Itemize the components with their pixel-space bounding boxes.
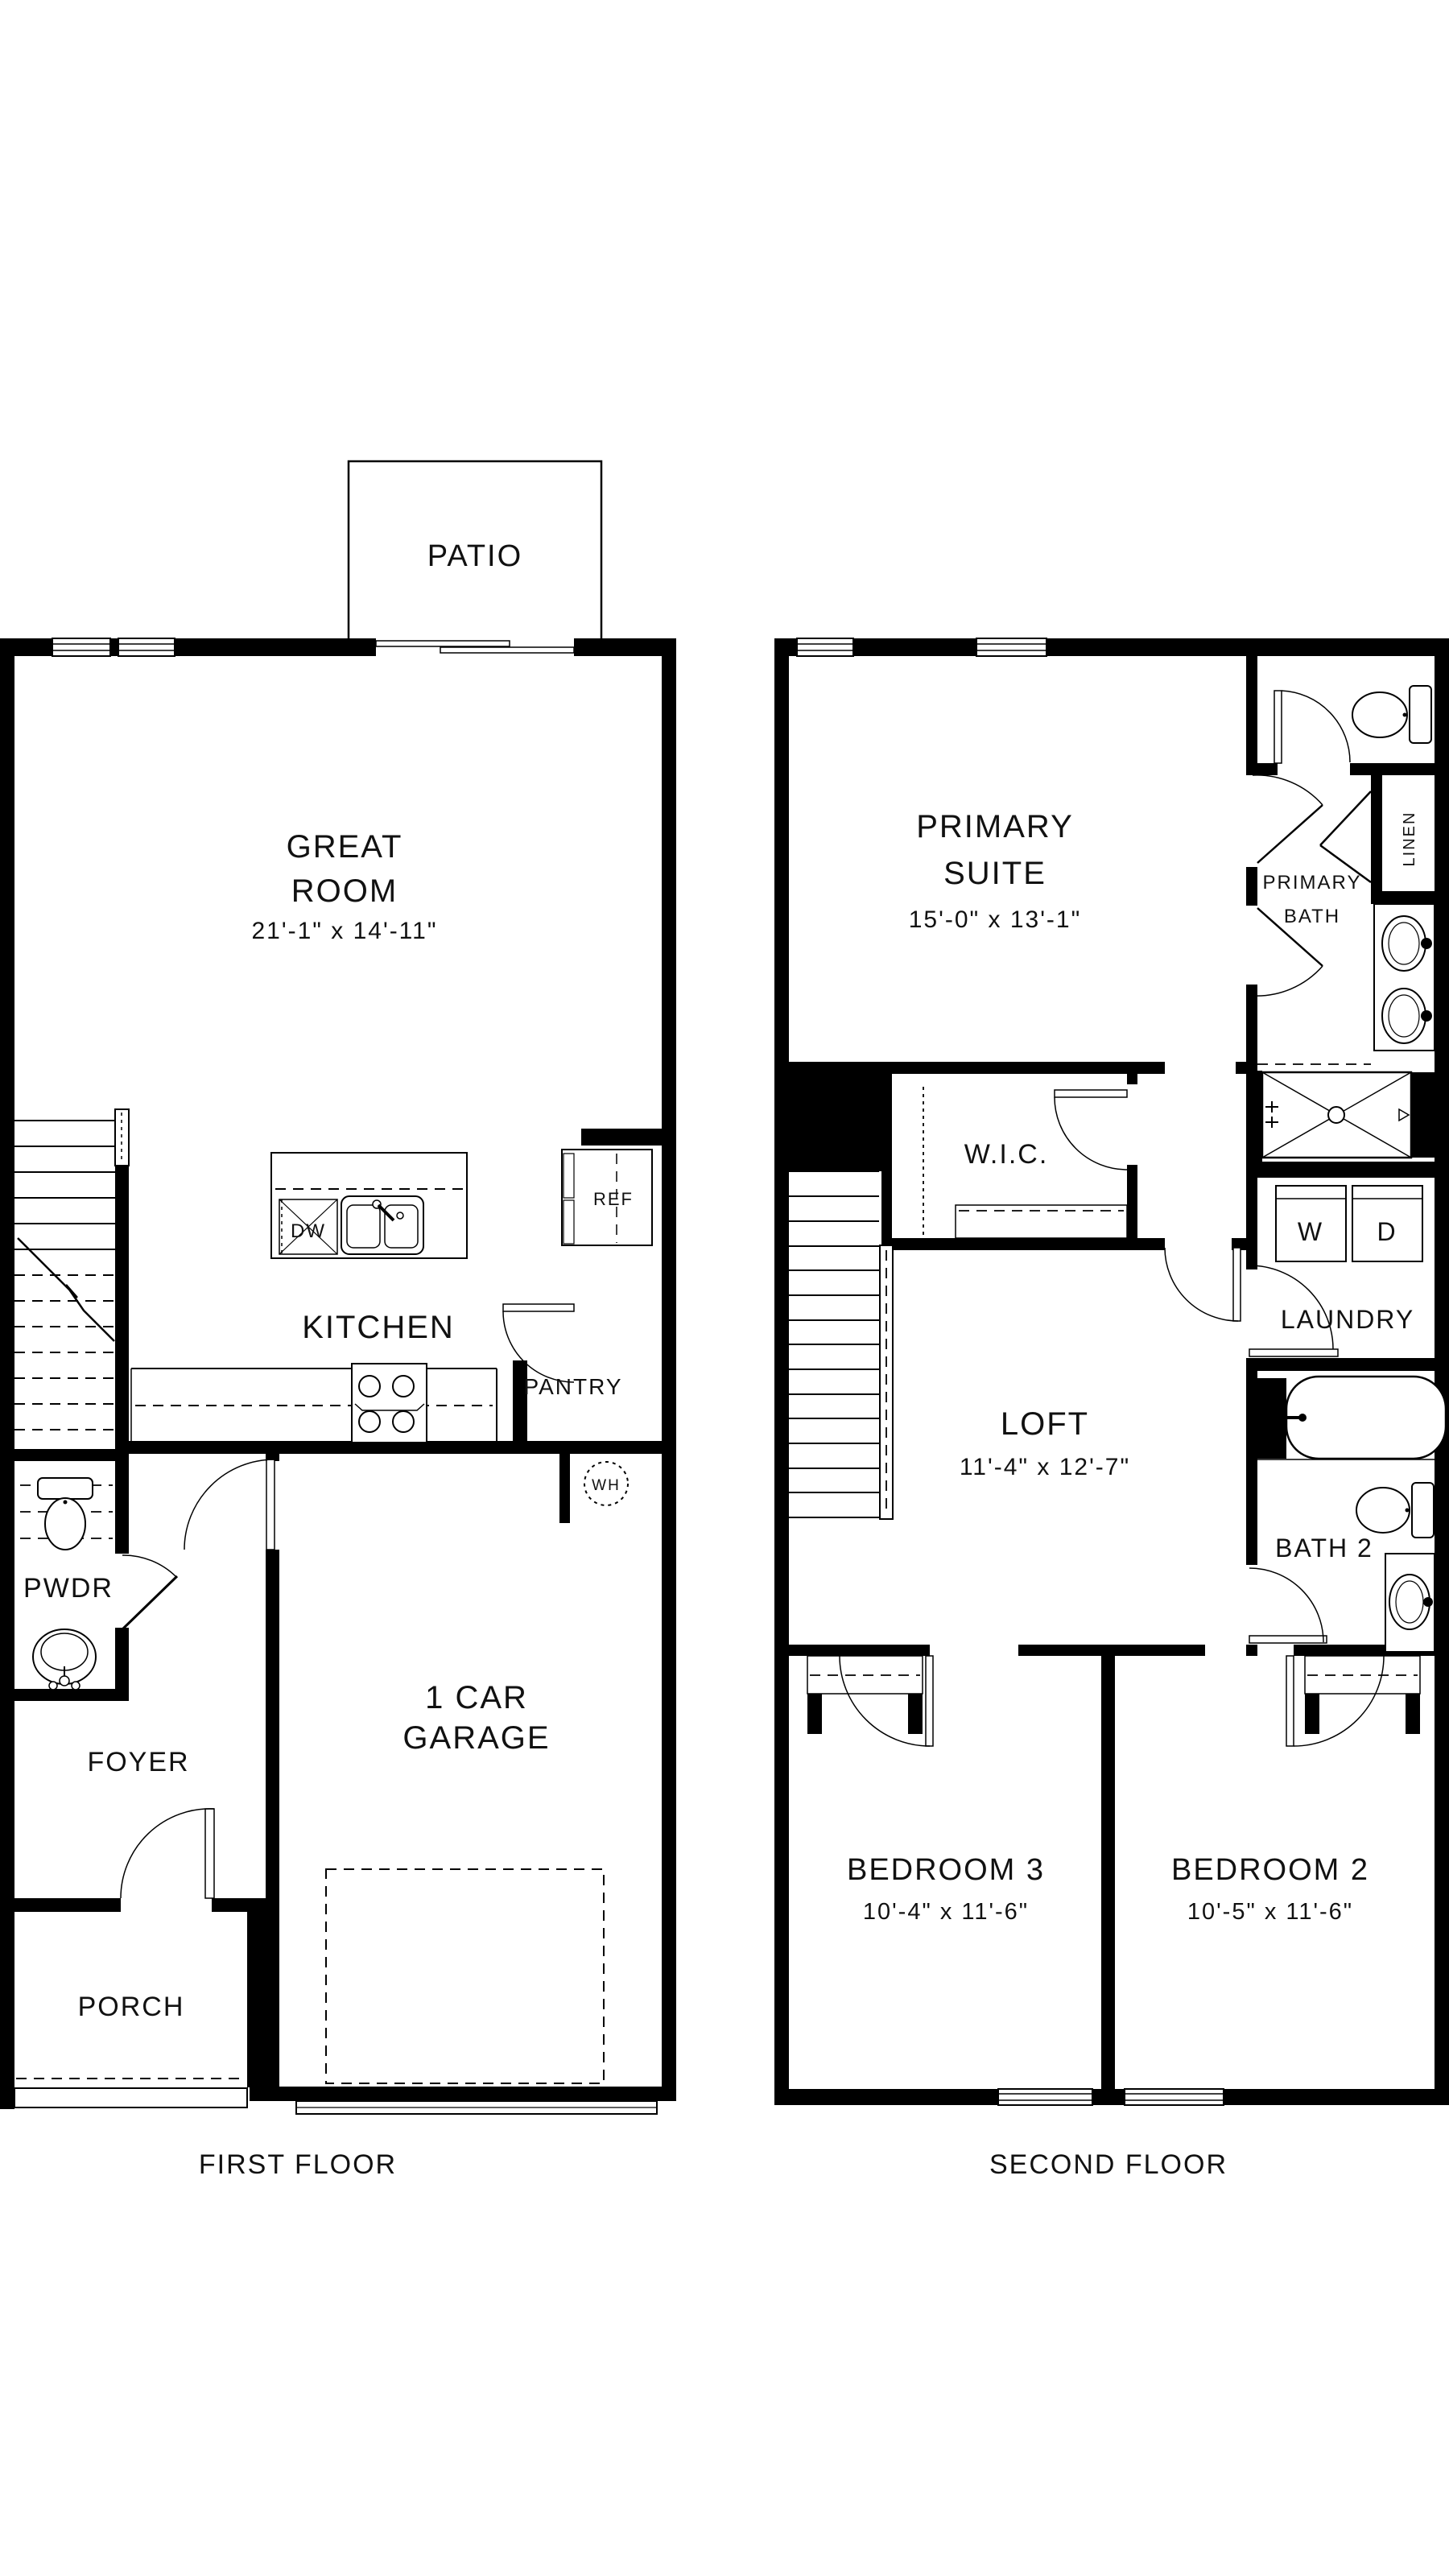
kitchen-island: DW: [271, 1153, 467, 1258]
bath2-label: BATH 2: [1275, 1534, 1373, 1563]
foyer-label: FOYER: [87, 1747, 189, 1777]
wh-label: WH: [592, 1477, 621, 1494]
dryer: D: [1352, 1186, 1422, 1261]
kitchen-sink: [341, 1196, 423, 1254]
bedroom2-label: BEDROOM 2: [1171, 1853, 1369, 1887]
great-room-dims: 21'-1" x 14'-11": [252, 918, 438, 944]
garage: 1 CAR GARAGE: [296, 1680, 657, 2114]
dryer-label: D: [1377, 1217, 1397, 1246]
laundry: W D LAUNDRY: [1249, 1186, 1422, 1356]
bedroom2-closet: [1305, 1656, 1420, 1694]
washer: W: [1276, 1186, 1346, 1261]
primary-suite: PRIMARY SUITE 15'-0" x 13'-1": [909, 809, 1082, 933]
garage-label-2: GARAGE: [402, 1720, 550, 1756]
stove: [352, 1364, 427, 1443]
loft-label: LOFT: [1001, 1406, 1089, 1442]
porch: PORCH: [14, 1992, 247, 2107]
refrigerator: REF: [562, 1150, 652, 1245]
primary-toilet-room: [1274, 686, 1431, 763]
ref-label: REF: [593, 1189, 634, 1209]
bedroom3-label: BEDROOM 3: [847, 1853, 1045, 1887]
primary-suite-dims: 15'-0" x 13'-1": [909, 906, 1082, 933]
pwdr-door: [122, 1555, 177, 1629]
first-floor-caption: FIRST FLOOR: [199, 2149, 397, 2180]
bath2-toilet: [1356, 1483, 1434, 1538]
first-floor-plan: PATIO: [0, 461, 676, 2180]
linen-label: LINEN: [1401, 811, 1418, 867]
hall-door: [1165, 1248, 1241, 1321]
first-floor-stairs: [14, 1109, 129, 1430]
bedroom-2: BEDROOM 2 10'-5" x 11'-6": [1171, 1853, 1369, 1925]
bedroom3-closet: [807, 1656, 923, 1694]
primary-bath-label-1: PRIMARY: [1263, 872, 1362, 894]
primary-toilet: [1352, 686, 1431, 743]
patio-label: PATIO: [427, 539, 522, 573]
bedroom3-dims: 10'-4" x 11'-6": [863, 1899, 1029, 1925]
floorplan-drawing: PATIO: [0, 0, 1449, 2576]
great-room-label-2: ROOM: [291, 873, 398, 909]
bedroom2-door: [1286, 1656, 1384, 1746]
garage-entry-door: [184, 1459, 275, 1550]
linen-closet: LINEN: [1320, 791, 1418, 882]
bedroom2-dims: 10'-5" x 11'-6": [1187, 1899, 1353, 1925]
porch-label: PORCH: [78, 1992, 185, 2022]
patio-outline: PATIO: [349, 461, 601, 640]
bath2-tub: [1286, 1377, 1446, 1459]
pwdr-label: PWDR: [23, 1573, 114, 1604]
front-door: [121, 1809, 214, 1898]
primary-suite-label-2: SUITE: [943, 856, 1046, 891]
bath2-vanity: [1385, 1554, 1435, 1652]
great-room: GREAT ROOM 21'-1" x 14'-11": [252, 829, 438, 944]
powder-room: PWDR: [20, 1478, 177, 1690]
kitchen-counter: [131, 1364, 497, 1443]
floorplan-page: PATIO: [0, 0, 1449, 2576]
walk-in-closet: W.I.C.: [923, 1087, 1127, 1238]
wic-label: W.I.C.: [964, 1139, 1049, 1170]
pwdr-sink: [33, 1629, 96, 1690]
primary-suite-label-1: PRIMARY: [916, 809, 1074, 844]
foyer: FOYER: [87, 1747, 189, 1777]
laundry-label: LAUNDRY: [1281, 1305, 1414, 1334]
great-room-label-1: GREAT: [287, 829, 403, 865]
washer-label: W: [1298, 1217, 1323, 1246]
garage-label-1: 1 CAR: [425, 1680, 528, 1715]
shower: [1262, 1072, 1411, 1158]
bedroom-3: BEDROOM 3 10'-4" x 11'-6": [847, 1853, 1045, 1925]
kitchen-label: KITCHEN: [302, 1310, 455, 1345]
loft: LOFT 11'-4" x 12'-7": [960, 1406, 1130, 1480]
pantry-label: PANTRY: [524, 1374, 623, 1399]
primary-vanity: [1374, 904, 1435, 1051]
patio-sliding-door: [376, 638, 574, 656]
water-heater: WH: [584, 1462, 628, 1505]
loft-dims: 11'-4" x 12'-7": [960, 1454, 1130, 1480]
garage-door: [296, 2101, 657, 2114]
second-floor-stairs: [789, 1171, 893, 1519]
second-floor-plan: PRIMARY SUITE 15'-0" x 13'-1" LINEN: [774, 638, 1449, 2180]
primary-bath-label-2: BATH: [1284, 906, 1340, 927]
dishwasher: DW: [279, 1199, 337, 1254]
dw-label: DW: [291, 1220, 326, 1242]
second-floor-caption: SECOND FLOOR: [989, 2149, 1228, 2180]
